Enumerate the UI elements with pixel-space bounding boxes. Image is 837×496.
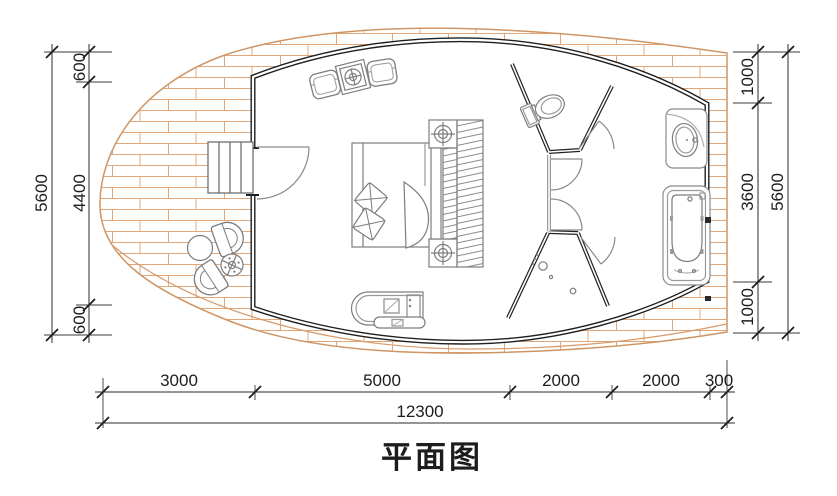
bathtub [663,186,710,285]
dim-left-seg: 600 [70,306,89,334]
side-table [335,59,370,94]
vanity-sink [666,109,707,168]
dim-right-seg: 1000 [738,58,757,96]
dim-bottom-seg: 300 [705,371,733,390]
stairs [208,142,253,193]
round-table [188,236,213,261]
floor-plan-page: 5600 600 4400 600 1000 3600 1000 5600 30… [0,0,837,496]
dim-bottom-seg: 2000 [542,371,580,390]
headboard-unit [429,120,483,267]
drawing-title: 平面图 [381,440,483,476]
dim-bottom-seg: 5000 [363,371,401,390]
dim-bottom-seg: 2000 [642,371,680,390]
dim-left-seg: 600 [70,53,89,81]
dim-left-seg: 4400 [70,174,89,212]
seating-chair-right [366,58,398,87]
wall-block [705,217,711,223]
wall-block [705,296,711,301]
console-counter [352,292,425,328]
double-bed [352,143,433,248]
dim-bottom-seg: 3000 [160,371,198,390]
dim-left-overall: 5600 [32,174,51,212]
dim-right-overall: 5600 [768,173,787,211]
dim-right-seg: 1000 [738,288,757,326]
dim-bottom-overall: 12300 [396,402,443,421]
floor-plan-drawing: 5600 600 4400 600 1000 3600 1000 5600 30… [0,0,837,496]
dim-right-seg: 3600 [738,173,757,211]
wardrobe [457,120,483,267]
